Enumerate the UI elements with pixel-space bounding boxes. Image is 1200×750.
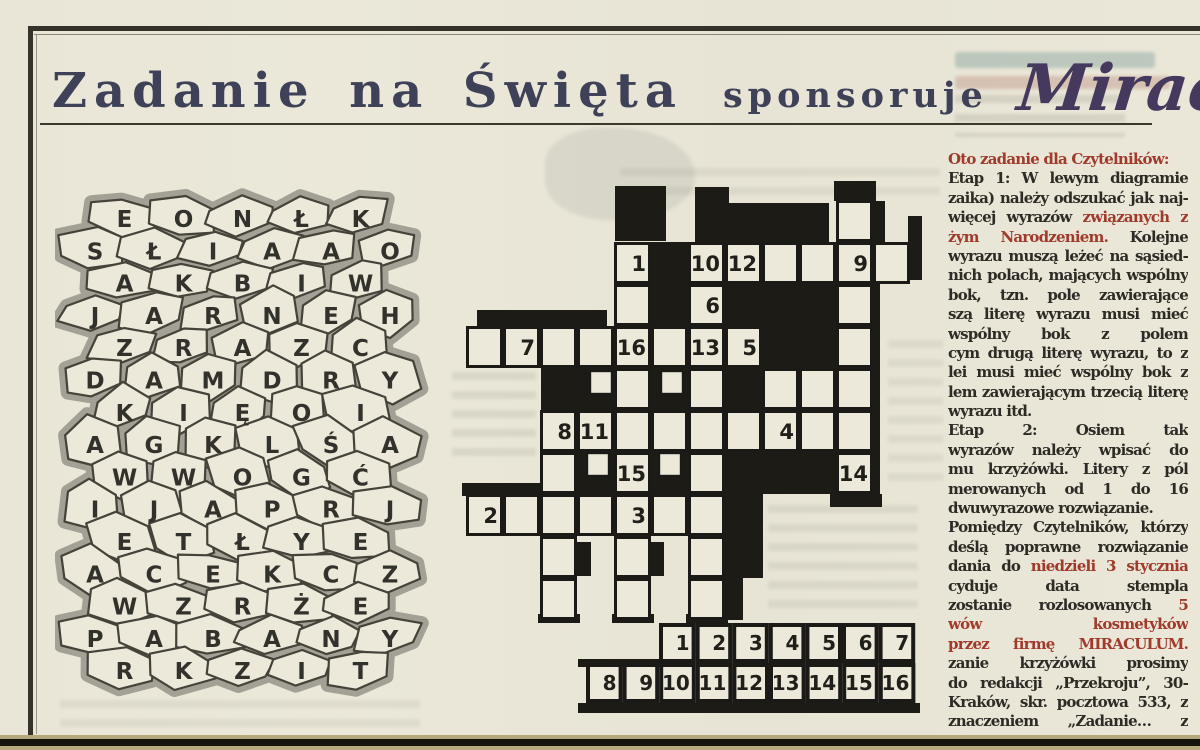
mosaic-letter: K [352, 207, 371, 233]
mosaic-letter: E [117, 207, 133, 233]
instruction-text: Etap 1: W lewym diagramie (mo- [948, 169, 1188, 188]
mosaic-letter: Y [381, 627, 399, 653]
crossword-cell-number: 8 [557, 420, 572, 444]
answer-strip-number: 10 [662, 671, 690, 695]
mosaic-letter: Z [382, 562, 399, 588]
instruction-highlight: Oto zadanie dla Czytelników: [948, 150, 1169, 168]
crossword-cell-number: 5 [742, 336, 757, 360]
crossword-cell [838, 202, 872, 241]
instruction-text: dwuwyrazowe rozwiązanie. [948, 499, 1153, 517]
mosaic-letter: Ś [323, 431, 340, 459]
crossword-black-region [477, 310, 607, 326]
mosaic-letter: H [380, 304, 399, 330]
mosaic-letter: I [209, 239, 218, 265]
mosaic-letter: W [348, 272, 373, 298]
instruction-line: przez firmę MIRACULUM. Rozwią- [948, 635, 1188, 654]
crossword-black-region [834, 181, 876, 201]
instruction-text: nich polach, mających wspólny [948, 266, 1188, 284]
answer-strip-number: 5 [822, 631, 836, 655]
mosaic-letter: G [292, 465, 311, 491]
mosaic-svg: EONŁKSŁIAAOAKBIWJARNEHZRAZCDAMDRYKIĘOIAG… [55, 183, 455, 703]
crossword-cell [838, 412, 872, 451]
instruction-line: wów kosmetyków ufundowanych [948, 615, 1188, 634]
crossword-cell [616, 286, 650, 325]
crossword-black-region [615, 186, 666, 241]
mosaic-letter: W [112, 465, 137, 491]
instruction-line: nich polach, mających wspólny [948, 266, 1188, 285]
crossword-black-region [651, 542, 664, 576]
answer-strip-number: 2 [712, 631, 726, 655]
instruction-text: Etap 2: Osiem tak wyszukanych [948, 421, 1188, 440]
mosaic-letter: O [233, 465, 253, 491]
mosaic-letter: J [384, 498, 395, 524]
answer-strip-number: 4 [785, 631, 799, 655]
mosaic-letter: A [86, 562, 104, 588]
instruction-line: deślą poprawne rozwiązanie za- [948, 538, 1188, 557]
crossword-cell [579, 328, 613, 367]
crossword-half-cell [590, 371, 612, 394]
crossword-cell [690, 538, 724, 577]
crossword-black-region [725, 452, 836, 494]
instruction-line: Etap 1: W lewym diagramie (mo- [948, 169, 1188, 188]
instruction-text: mu krzyżówki. Litery z pól ponu- [948, 460, 1188, 479]
crossword-cell-number: 13 [691, 336, 720, 360]
mosaic-letter: B [204, 627, 222, 653]
crossword-cell [801, 370, 835, 409]
mosaic-letter: R [234, 595, 252, 621]
answer-strip-number: 14 [808, 671, 836, 695]
instruction-line: Pomiędzy Czytelników, którzy na- [948, 518, 1188, 537]
crossword-cell [838, 286, 872, 325]
instruction-text: bok, tzn. pole zawierające pierw- [948, 286, 1188, 305]
mosaic-letter: J [148, 498, 159, 524]
answer-strip-number: 7 [895, 631, 909, 655]
crossword-cell-number: 3 [631, 504, 646, 528]
mosaic-letter: E [117, 530, 133, 556]
crossword-black-region [908, 216, 922, 280]
answer-strip-number: 6 [859, 631, 873, 655]
crossword-black-region [725, 578, 743, 620]
bleed-through-ghost [60, 700, 420, 736]
instruction-highlight: przez firmę MIRACULUM. [948, 635, 1188, 653]
crossword-black-region [577, 542, 591, 576]
mosaic-letter: A [116, 272, 134, 298]
instruction-line: merowanych od 1 do 16 utworzą [948, 480, 1188, 499]
crossword-cell [542, 454, 576, 493]
instruction-highlight: żym Narodzeniem. [948, 228, 1108, 246]
instruction-text: Kraków, skr. pocztowa 533, z za- [948, 693, 1188, 712]
instruction-text: cyduje data stempla pocztowego), [948, 577, 1188, 596]
crossword-half-cell [587, 453, 609, 476]
instruction-text: wyrazów należy wpisać do diagra- [948, 441, 1188, 460]
crossword-cell [690, 454, 724, 493]
crossword-cell [616, 580, 650, 619]
crossword-cell-number: 2 [483, 504, 498, 528]
mosaic-letter: G [145, 433, 164, 459]
instruction-line: wyrazów należy wpisać do diagra- [948, 441, 1188, 460]
crossword-black-region [695, 187, 729, 203]
mosaic-letter: R [175, 336, 193, 362]
mosaic-letter: K [175, 272, 194, 298]
instruction-line: bok, tzn. pole zawierające pierw- [948, 286, 1188, 305]
crossword-cell [579, 496, 613, 535]
crossword-cell [616, 370, 650, 409]
crossword-cell [690, 580, 724, 619]
crossword-cell [838, 370, 872, 409]
crossword-cell-number: 1 [631, 252, 646, 276]
instruction-line: więcej wyrazów związanych z Bo- [948, 208, 1188, 227]
mosaic-letter: N [233, 207, 252, 233]
crossword-cell [690, 496, 724, 535]
scanned-magazine-page: Zadanie na ŚwiętasponsorujeMiraculum EON… [0, 0, 1200, 750]
instruction-line: wyrazu itd. [948, 402, 1188, 421]
answer-strip-number: 13 [772, 671, 800, 695]
mosaic-letter: Y [381, 369, 399, 395]
instruction-text: lem zawierającym trzecią literę [948, 383, 1188, 401]
mosaic-letter: O [292, 401, 312, 427]
instruction-line: lem zawierającym trzecią literę [948, 383, 1188, 402]
crossword-cell [505, 496, 539, 535]
mosaic-letter: K [263, 562, 282, 588]
mosaic-letter: Ę [235, 401, 251, 427]
mosaic-letter: E [353, 595, 369, 621]
instruction-line: zaika) należy odszukać jak naj- [948, 189, 1188, 208]
mosaic-letter: D [85, 369, 104, 395]
mosaic-letter: A [204, 498, 222, 524]
mosaic-letter: M [202, 369, 225, 395]
mosaic-letter: N [262, 304, 281, 330]
mosaic-letter: P [87, 627, 104, 653]
answer-strip-number: 8 [603, 671, 617, 695]
mosaic-letter: J [89, 304, 100, 330]
bottom-rule [0, 739, 1200, 746]
mosaic-letter: Ł [145, 239, 162, 265]
crossword-cell-number: 9 [853, 252, 868, 276]
answer-strip-number: 15 [845, 671, 873, 695]
crossword-cell [468, 328, 502, 367]
mosaic-letter: Z [234, 659, 251, 685]
mosaic-letter: B [234, 272, 252, 298]
mosaic-letter: Ć [352, 463, 369, 491]
instruction-text: merowanych od 1 do 16 utworzą [948, 480, 1188, 499]
answer-strip-number: 16 [882, 671, 910, 695]
crossword-cell [616, 412, 650, 451]
letter-mosaic-diagram: EONŁKSŁIAAOAKBIWJARNEHZRAZCDAMDRYKIĘOIAG… [55, 183, 455, 703]
mosaic-letter: E [323, 304, 339, 330]
mosaic-letter: T [176, 530, 192, 556]
mosaic-letter: A [145, 369, 163, 395]
mosaic-letter: R [322, 498, 340, 524]
crossword-cell [653, 496, 687, 535]
instruction-line: lei musi mieć wspólny bok z po- [948, 363, 1188, 382]
mosaic-letter: A [145, 627, 163, 653]
mosaic-letter: R [322, 369, 340, 395]
answer-strip-bar [578, 703, 920, 713]
mosaic-letter: Ł [292, 207, 309, 233]
crossword-cell [838, 328, 872, 367]
mosaic-letter: W [171, 465, 196, 491]
crossword-cell-number: 10 [691, 252, 720, 276]
instruction-text: więcej wyrazów [948, 208, 1083, 226]
crossword-cell [542, 496, 576, 535]
mosaic-letter: E [353, 530, 369, 556]
mosaic-letter: Ł [233, 530, 250, 556]
crossword-black-region [651, 242, 689, 326]
title-rule [40, 123, 1152, 125]
crossword-cell [653, 328, 687, 367]
sponsor-brand-logo: Miraculum [1014, 51, 1200, 126]
instruction-text: Pomiędzy Czytelników, którzy na- [948, 518, 1188, 537]
answer-strip-number: 1 [676, 631, 690, 655]
mosaic-letter: N [321, 627, 340, 653]
instruction-line: znaczeniem „Zadanie… z MIRA- [948, 712, 1188, 731]
mosaic-letter: K [204, 433, 223, 459]
sponsor-label: sponsoruje [723, 75, 988, 116]
mosaic-letter: O [380, 239, 400, 265]
instruction-line: zanie krzyżówki prosimy nadsyłać [948, 654, 1188, 673]
instruction-line: wspólny bok z polem zawierają- [948, 325, 1188, 344]
crossword-cell [542, 580, 576, 619]
mosaic-letter: I [91, 498, 100, 524]
instruction-line: do redakcji „Przekroju”, 30-960 [948, 674, 1188, 693]
instruction-text: wyrazu itd. [948, 402, 1031, 420]
mosaic-letter: C [352, 336, 369, 362]
instruction-line: żym Narodzeniem. Kolejne litery [948, 228, 1188, 247]
mosaic-letter: A [322, 239, 340, 265]
page-frame-top [28, 26, 1200, 31]
crossword-cell [764, 370, 798, 409]
instruction-text: wspólny bok z polem zawierają- [948, 325, 1188, 344]
crossword-cell [542, 328, 576, 367]
instruction-line: dania do niedzieli 3 stycznia (de- [948, 557, 1188, 576]
instruction-text: zaika) należy odszukać jak naj- [948, 189, 1188, 207]
mosaic-letter: I [179, 401, 188, 427]
instruction-line: Oto zadanie dla Czytelników: [948, 150, 1188, 169]
mosaic-letter: Z [175, 595, 192, 621]
crossword-black-region [725, 368, 763, 412]
crossword-cell-number: 6 [705, 294, 720, 318]
instruction-line: szą literę wyrazu musi mieć [948, 305, 1188, 324]
instruction-line: cyduje data stempla pocztowego), [948, 577, 1188, 596]
crossword-cell-number: 16 [617, 336, 646, 360]
mosaic-letter: E [205, 562, 221, 588]
instruction-line: Etap 2: Osiem tak wyszukanych [948, 421, 1188, 440]
mosaic-letter: K [116, 401, 135, 427]
mosaic-letter: P [264, 498, 281, 524]
crossword-cell [727, 412, 761, 451]
crossword-cell [801, 244, 835, 283]
instruction-text: zanie krzyżówki prosimy nadsyłać [948, 654, 1188, 673]
instruction-text: szą literę wyrazu musi mieć [948, 305, 1188, 323]
masthead: Zadanie na ŚwiętasponsorujeMiraculum [52, 48, 1200, 123]
mosaic-letter: C [146, 562, 163, 588]
mosaic-letter: Ż [293, 593, 310, 621]
mosaic-letter: A [381, 433, 399, 459]
page-frame-left [28, 26, 33, 738]
mosaic-letter: S [87, 239, 104, 265]
mosaic-letter: O [174, 207, 194, 233]
mosaic-letter: W [112, 595, 137, 621]
instruction-highlight: niedzieli 3 stycznia [1031, 557, 1188, 575]
instruction-text: lei musi mieć wspólny bok z po- [948, 363, 1188, 382]
mosaic-letter: Y [292, 530, 310, 556]
mosaic-letter: A [145, 304, 163, 330]
instruction-line: zostanie rozlosowanych 5 zesta- [948, 596, 1188, 615]
instruction-text: do redakcji „Przekroju”, 30-960 [948, 674, 1188, 693]
crossword-cell [801, 412, 835, 451]
answer-strip-number: 9 [639, 671, 653, 695]
mosaic-letter: K [175, 659, 194, 685]
crossword-cell-number: 7 [520, 336, 535, 360]
crossword-cell-number: 15 [617, 462, 646, 486]
answer-strip-number: 3 [749, 631, 763, 655]
crossword-cell [653, 412, 687, 451]
crossword-cell [875, 244, 909, 283]
mosaic-letter: I [297, 272, 306, 298]
page-title: Zadanie na Święta [52, 63, 683, 119]
instruction-text: wyrazu muszą leżeć na sąsied- [948, 247, 1188, 265]
crossword-half-cell [659, 453, 681, 476]
crossword-cell [542, 538, 576, 577]
instruction-text: cym drugą literę wyrazu, to z ko- [948, 344, 1188, 363]
crossword-svg: 1101296716135811415142312345678910111213… [450, 175, 930, 720]
mosaic-letter: Z [293, 336, 310, 362]
crossword-cell [764, 244, 798, 283]
instruction-text: zostanie rozlosowanych [948, 596, 1178, 614]
crossword-cell [616, 538, 650, 577]
instruction-text: znaczeniem „Zadanie… z MIRA- [948, 712, 1188, 731]
mosaic-letter: Z [116, 336, 133, 362]
mosaic-letter: C [323, 562, 340, 588]
mosaic-letter: R [116, 659, 134, 685]
mosaic-letter: A [263, 239, 281, 265]
mosaic-letter: A [234, 336, 252, 362]
mosaic-letter: T [353, 659, 369, 685]
mosaic-letter: L [265, 433, 280, 459]
crossword-black-region [762, 326, 837, 368]
crossword-cell-number: 14 [839, 462, 868, 486]
crossword-half-cell [661, 371, 683, 394]
crossword-cell [690, 370, 724, 409]
crossword-cell [690, 412, 724, 451]
instruction-text: deślą poprawne rozwiązanie za- [948, 538, 1188, 557]
page-frame-top-inner [34, 34, 1200, 35]
crossword-black-region [830, 494, 882, 507]
instruction-highlight: wów kosmetyków ufundowanych [948, 615, 1188, 634]
mosaic-letter: I [297, 659, 306, 685]
mosaic-letter: A [263, 627, 281, 653]
crossword-black-region [725, 494, 763, 578]
instruction-line: wyrazu muszą leżeć na sąsied- [948, 247, 1188, 266]
instructions-column: Oto zadanie dla Czytelników:Etap 1: W le… [948, 150, 1188, 750]
crossword-black-region [725, 284, 836, 326]
instruction-line: cym drugą literę wyrazu, to z ko- [948, 344, 1188, 363]
answer-strip-number: 12 [735, 671, 763, 695]
crossword-diagram: 1101296716135811415142312345678910111213… [450, 175, 930, 720]
crossword-black-region [695, 203, 829, 242]
mosaic-letter: R [204, 304, 222, 330]
answer-strip-number: 11 [699, 671, 727, 695]
mosaic-letter: A [86, 433, 104, 459]
mosaic-letter: D [262, 369, 281, 395]
instruction-line: dwuwyrazowe rozwiązanie. [948, 499, 1188, 518]
crossword-black-region [873, 201, 885, 242]
crossword-cell-number: 4 [779, 420, 794, 444]
mosaic-letter: I [356, 401, 365, 427]
instruction-line: Kraków, skr. pocztowa 533, z za- [948, 693, 1188, 712]
instruction-text: dania do [948, 557, 1031, 575]
page-frame-left-inner [36, 34, 37, 734]
crossword-cell-number: 12 [728, 252, 757, 276]
crossword-cell-number: 11 [580, 420, 609, 444]
instruction-line: mu krzyżówki. Litery z pól ponu- [948, 460, 1188, 479]
